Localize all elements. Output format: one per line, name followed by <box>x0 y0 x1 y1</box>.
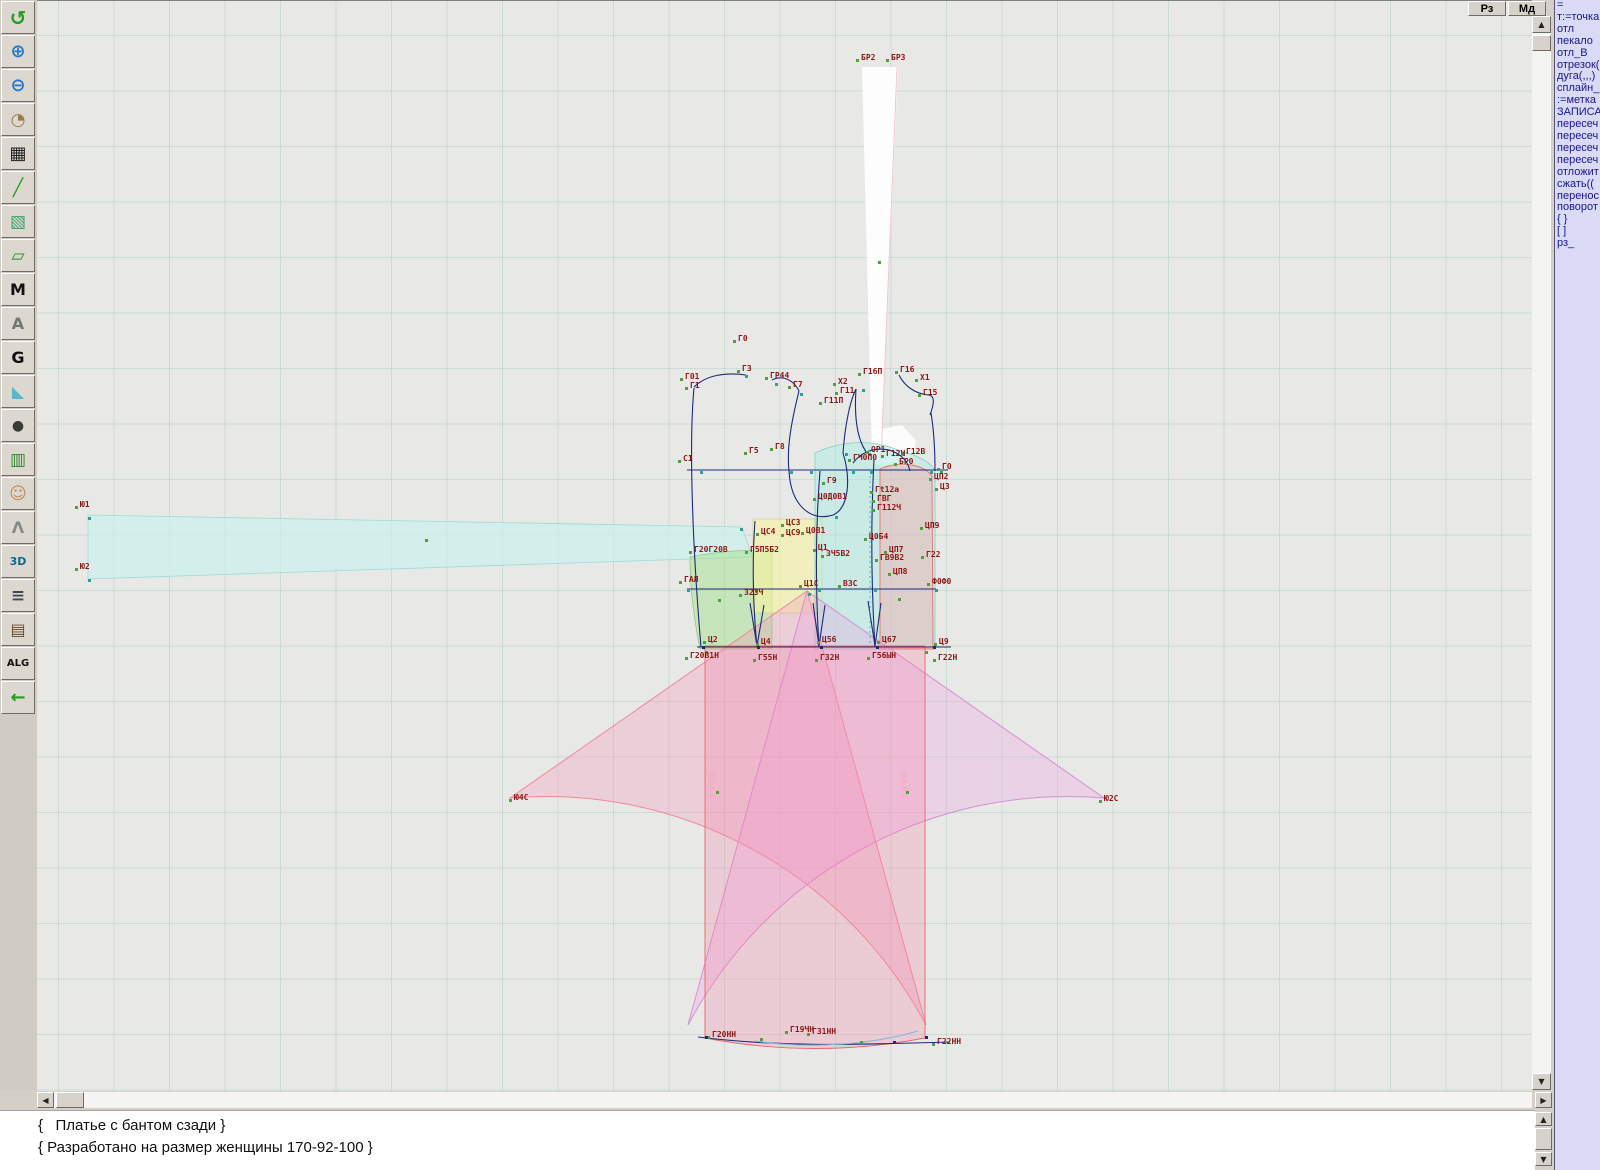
point-label: Г15 <box>923 389 937 397</box>
point-label: ЦС4 <box>761 528 775 536</box>
point-marker <box>808 593 811 596</box>
point-label: Г7 <box>793 381 803 389</box>
point-marker <box>88 579 91 582</box>
point-label: Г16П <box>863 368 882 376</box>
point-marker <box>800 393 803 396</box>
skirt-center-panel <box>705 646 925 1049</box>
point-marker <box>815 659 818 662</box>
point-marker <box>810 471 813 474</box>
skirt-piece-vertical-label: ЮБКА <box>707 773 716 800</box>
point-marker <box>88 517 91 520</box>
point-marker <box>733 340 736 343</box>
point-marker <box>888 573 891 576</box>
point-label: Ц0Б4 <box>869 533 888 541</box>
point-marker <box>702 646 705 649</box>
point-label: Ю2 <box>80 563 90 571</box>
point-label: Ю2С <box>1104 795 1118 803</box>
point-marker <box>813 498 816 501</box>
grid-icon[interactable]: ▦ <box>1 137 35 170</box>
point-marker <box>906 791 909 794</box>
compass-icon[interactable]: A <box>1 307 35 340</box>
command-panel: =т:=точкаотлпекалоотл_Вотрезок(дуга(,,,)… <box>1554 0 1600 1170</box>
point-label: БР2 <box>861 54 875 62</box>
point-marker <box>874 589 877 592</box>
point-marker <box>788 386 791 389</box>
point-marker <box>835 392 838 395</box>
point-label: Г9 <box>827 477 837 485</box>
point-marker <box>860 1041 863 1044</box>
zoom-out-icon[interactable]: ⊖ <box>1 69 35 102</box>
point-label: Ц4 <box>761 638 771 646</box>
mode-rz-button[interactable]: Рз <box>1468 1 1506 16</box>
point-label: Ф0Ф0 <box>932 578 951 586</box>
point-marker <box>833 383 836 386</box>
point-label: БР0 <box>899 458 913 466</box>
point-marker <box>813 549 816 552</box>
garment-icon[interactable]: Λ <box>1 511 35 544</box>
point-label: Г56ЫН <box>872 652 896 660</box>
point-label: Ц1С <box>804 580 818 588</box>
ruler-icon[interactable]: ◣ <box>1 375 35 408</box>
pattern-piece-icon[interactable]: ▱ <box>1 239 35 272</box>
point-label: ГВ9В2 <box>880 554 904 562</box>
point-label: Ц67 <box>882 636 896 644</box>
point-marker <box>862 389 865 392</box>
command-item[interactable]: = <box>1555 0 1600 12</box>
command-item[interactable]: пересеч <box>1555 143 1600 155</box>
toolbar: ↺⊕⊖◔▦╱▧▱MAG◣●▥☺Λ3D≡▤ALG← <box>0 0 38 1090</box>
command-item[interactable]: { } <box>1555 214 1600 226</box>
scroll-down-button[interactable]: ▼ <box>1532 1073 1551 1090</box>
point-label: Х1 <box>920 374 930 382</box>
point-label: Г20НН <box>712 1031 736 1039</box>
point-marker <box>790 471 793 474</box>
point-marker <box>700 471 703 474</box>
point-label: Г112Ч <box>877 504 901 512</box>
point-label: БР3 <box>891 54 905 62</box>
command-item[interactable]: поворот <box>1555 202 1600 214</box>
point-marker <box>745 375 748 378</box>
point-marker <box>775 383 778 386</box>
point-marker <box>898 598 901 601</box>
status-text-area[interactable]: { Платье с бантом сзади } { Разработано … <box>0 1110 1535 1170</box>
point-label: Г22 <box>926 551 940 559</box>
point-marker <box>872 500 875 503</box>
point-marker <box>932 1043 935 1046</box>
point-marker <box>75 506 78 509</box>
point-marker <box>930 471 933 474</box>
point-label: ЦС3 <box>786 519 800 527</box>
point-marker <box>680 378 683 381</box>
status-scrollbar-thumb[interactable] <box>1535 1128 1552 1150</box>
point-marker <box>679 581 682 584</box>
point-label: Г1 <box>690 382 700 390</box>
point-label: Г0 <box>942 463 952 471</box>
pattern-drawing <box>37 1 1532 1091</box>
point-label: Г0 <box>738 335 748 343</box>
scroll-up-button[interactable]: ▲ <box>1532 16 1551 33</box>
point-label: ГЧ0П0 <box>853 454 877 462</box>
command-item[interactable]: сжать(( <box>1555 179 1600 191</box>
command-item[interactable]: перенос <box>1555 191 1600 203</box>
point-marker <box>895 371 898 374</box>
point-marker <box>425 539 428 542</box>
command-item[interactable]: пересеч <box>1555 131 1600 143</box>
point-marker <box>744 452 747 455</box>
bow-band-piece <box>88 515 752 579</box>
point-label: Г20Г20В <box>694 546 728 554</box>
point-label: Г3 <box>742 365 752 373</box>
point-marker <box>933 646 936 649</box>
point-marker <box>678 460 681 463</box>
horizontal-scrollbar-thumb[interactable] <box>56 1092 84 1108</box>
leko-pattern-cad-window: ↺⊕⊖◔▦╱▧▱MAG◣●▥☺Λ3D≡▤ALG← <box>0 0 1600 1170</box>
books-icon[interactable]: ▤ <box>1 613 35 646</box>
point-label: ГВГ <box>877 495 891 503</box>
point-marker <box>876 646 879 649</box>
point-label: Ц0В1 <box>806 527 825 535</box>
point-marker <box>801 532 804 535</box>
point-marker <box>1099 800 1102 803</box>
point-marker <box>864 538 867 541</box>
point-marker <box>921 556 924 559</box>
point-marker <box>878 261 881 264</box>
point-label: ВЗС <box>843 580 857 588</box>
point-label: Х2 <box>838 378 848 386</box>
command-item[interactable]: пересеч <box>1555 155 1600 167</box>
point-label: С1 <box>683 455 693 463</box>
command-item[interactable]: т:=точка <box>1555 12 1600 24</box>
point-marker <box>765 377 768 380</box>
command-item[interactable]: :=метка <box>1555 95 1600 107</box>
command-item[interactable]: отрезок( <box>1555 60 1600 72</box>
point-marker <box>872 509 875 512</box>
point-marker <box>877 641 880 644</box>
measure-line-icon[interactable]: ╱ <box>1 171 35 204</box>
point-marker <box>739 594 742 597</box>
point-label: Г31НН <box>812 1028 836 1036</box>
point-marker <box>785 1031 788 1034</box>
point-label: Ц56 <box>822 636 836 644</box>
command-item[interactable]: отложит <box>1555 167 1600 179</box>
point-label: Г01 <box>685 373 699 381</box>
point-marker <box>925 651 928 654</box>
command-item[interactable]: отл <box>1555 24 1600 36</box>
pattern-m-icon[interactable]: M <box>1 273 35 306</box>
point-marker <box>925 1036 928 1039</box>
point-label: Гt12а <box>875 486 899 494</box>
point-marker <box>685 657 688 660</box>
point-marker <box>718 599 721 602</box>
point-marker <box>770 448 773 451</box>
camera-icon[interactable]: ● <box>1 409 35 442</box>
point-marker <box>756 533 759 536</box>
point-label: Г11 <box>840 387 854 395</box>
point-marker <box>703 641 706 644</box>
point-marker <box>893 1041 896 1044</box>
horizontal-scrollbar-track[interactable] <box>37 1092 1532 1108</box>
point-marker <box>927 583 930 586</box>
point-marker <box>821 555 824 558</box>
point-label: Г8 <box>775 443 785 451</box>
point-label: Г20В1Н <box>690 652 719 660</box>
point-label: ЦС9 <box>786 529 800 537</box>
zoom-piece-icon[interactable]: ◔ <box>1 103 35 136</box>
point-marker <box>848 459 851 462</box>
point-label: Ц9 <box>939 638 949 646</box>
point-marker <box>737 370 740 373</box>
point-label: Ю4С <box>514 794 528 802</box>
point-label: З2ЗЧ <box>744 589 763 597</box>
point-marker <box>753 659 756 662</box>
point-marker <box>716 791 719 794</box>
point-marker <box>760 1038 763 1041</box>
command-item[interactable]: сплайн_ <box>1555 83 1600 95</box>
model-photo-icon[interactable]: ☺ <box>1 477 35 510</box>
point-label: Г16 <box>900 366 914 374</box>
point-marker <box>875 559 878 562</box>
mode-md-button[interactable]: Мд <box>1508 1 1546 16</box>
point-marker <box>689 551 692 554</box>
point-marker <box>799 585 802 588</box>
point-label: ЗЧ5В2 <box>826 550 850 558</box>
point-marker <box>781 524 784 527</box>
point-marker <box>894 463 897 466</box>
point-marker <box>817 641 820 644</box>
point-marker <box>852 471 855 474</box>
point-marker <box>867 657 870 660</box>
command-item[interactable]: дуга(,,,) <box>1555 71 1600 83</box>
point-marker <box>745 551 748 554</box>
point-marker <box>781 534 784 537</box>
zoom-in-icon[interactable]: ⊕ <box>1 35 35 68</box>
point-marker <box>915 379 918 382</box>
point-marker <box>835 516 838 519</box>
point-marker <box>856 59 859 62</box>
point-label: Г22Н <box>938 654 957 662</box>
pattern-canvas[interactable]: БР2БР3Ю1Ю2Г0Г3Г01Г1ГР44Г7Х2Г11Г16ПГ16Х1Г… <box>37 0 1532 1091</box>
point-marker <box>822 482 825 485</box>
point-label: Ц2 <box>708 636 718 644</box>
refresh-icon[interactable]: ↺ <box>1 1 35 34</box>
command-item[interactable]: пересеч <box>1555 119 1600 131</box>
command-item[interactable]: [ ] <box>1555 226 1600 238</box>
scroll-left-button[interactable]: ◀ <box>37 1092 54 1108</box>
point-marker <box>870 491 873 494</box>
status-line-1: { Платье с бантом сзади } <box>38 1117 225 1134</box>
command-item[interactable]: отл_В <box>1555 48 1600 60</box>
status-scroll-up-button[interactable]: ▲ <box>1535 1112 1552 1126</box>
point-label: Г12В <box>906 448 925 456</box>
point-label: Г5 <box>749 447 759 455</box>
point-marker <box>705 1036 708 1039</box>
point-marker <box>845 453 848 456</box>
point-marker <box>819 402 822 405</box>
point-marker <box>818 589 821 592</box>
scroll-right-button[interactable]: ▶ <box>1535 1092 1552 1108</box>
point-marker <box>933 659 936 662</box>
point-marker <box>918 394 921 397</box>
point-label: ЦП9 <box>925 522 939 530</box>
skirt-piece-vertical-label: ЮБКА <box>899 773 908 800</box>
point-label: ЦП2 <box>934 473 948 481</box>
point-label: Г32Н <box>820 654 839 662</box>
point-marker <box>757 646 760 649</box>
command-item[interactable]: пекало <box>1555 36 1600 48</box>
point-marker <box>929 478 932 481</box>
point-label: ГАЛ <box>684 576 698 584</box>
status-line-2: { Разработано на размер женщины 170-92-1… <box>38 1139 373 1156</box>
point-marker <box>935 488 938 491</box>
point-marker <box>685 387 688 390</box>
point-marker <box>75 568 78 571</box>
point-marker <box>870 471 873 474</box>
exit-icon[interactable]: ← <box>1 681 35 714</box>
status-scroll-down-button[interactable]: ▼ <box>1535 1152 1552 1166</box>
point-label: Ц3 <box>940 483 950 491</box>
point-marker <box>820 646 823 649</box>
point-label: Ю1 <box>80 501 90 509</box>
vertical-scrollbar-thumb[interactable] <box>1532 35 1551 51</box>
view-3d-icon[interactable]: 3D <box>1 545 35 578</box>
point-label: Г22НН <box>937 1038 961 1046</box>
command-item[interactable]: ЗАПИСА <box>1555 107 1600 119</box>
point-marker <box>858 373 861 376</box>
text-list-icon[interactable]: ≡ <box>1 579 35 612</box>
point-marker <box>687 589 690 592</box>
vertical-scrollbar-track[interactable] <box>1532 16 1551 1090</box>
alg-doc-icon[interactable]: ALG <box>1 647 35 680</box>
command-item[interactable]: рз_ <box>1555 238 1600 250</box>
g-tool-icon[interactable]: G <box>1 341 35 374</box>
point-marker <box>935 589 938 592</box>
point-label: Ц0Д0В1 <box>818 493 847 501</box>
point-marker <box>838 585 841 588</box>
table-icon[interactable]: ▥ <box>1 443 35 476</box>
point-label: ЦП8 <box>893 568 907 576</box>
point-label: ГР44 <box>770 372 789 380</box>
image-icon[interactable]: ▧ <box>1 205 35 238</box>
point-marker <box>920 527 923 530</box>
point-label: Г11П <box>824 397 843 405</box>
point-label: Г55Н <box>758 654 777 662</box>
point-marker <box>509 799 512 802</box>
point-marker <box>886 59 889 62</box>
point-marker <box>881 455 884 458</box>
point-label: Г19ЧН <box>790 1026 814 1034</box>
point-label: Г5П5Б2 <box>750 546 779 554</box>
point-marker <box>740 528 743 531</box>
